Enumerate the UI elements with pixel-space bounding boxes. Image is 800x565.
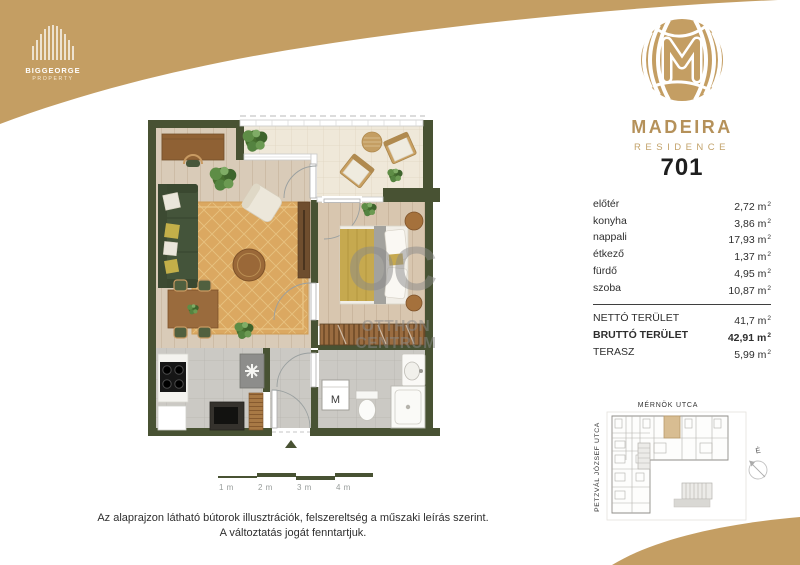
area-row: szoba 10,87 m2 <box>593 282 771 299</box>
disclaimer-line1: Az alaprajzon látható bútorok illusztrác… <box>35 511 551 526</box>
entrance-marker-icon <box>285 440 297 448</box>
area-row: előtér 2,72 m2 <box>593 198 771 215</box>
scale-label: 2 m <box>258 483 273 492</box>
hall-bench <box>249 393 263 430</box>
table-divider <box>593 304 771 305</box>
disclaimer: Az alaprajzon látható bútorok illusztrác… <box>35 511 551 540</box>
project-logo: MADEIRA RESIDENCE <box>593 16 771 153</box>
developer-logo: BIGGEORGE PROPERTY <box>18 22 88 82</box>
scale-bar: 1 m 2 m 3 m 4 m <box>218 470 376 496</box>
area-table: előtér 2,72 m2 konyha 3,86 m2 nappali 17… <box>593 198 771 362</box>
area-row: fürdő 4,95 m2 <box>593 265 771 282</box>
washing-machine-label: M <box>331 394 340 406</box>
desk <box>162 134 224 160</box>
highlighted-unit <box>664 416 680 438</box>
total-row-terasz: TERASZ 5,99 m2 <box>593 346 771 363</box>
compass-label: É <box>755 446 762 456</box>
washing-machine: M <box>322 380 349 410</box>
unit-number: 701 <box>593 154 771 182</box>
project-name: MADEIRA <box>593 117 771 138</box>
area-row: étkező 1,37 m2 <box>593 248 771 265</box>
project-subtitle: RESIDENCE <box>593 142 771 153</box>
scale-label: 3 m <box>297 483 312 492</box>
watermark: OC OTTHON CENTRUM <box>348 235 437 352</box>
pillow-yellow <box>164 223 180 239</box>
developer-subtitle: PROPERTY <box>18 76 88 82</box>
site-plan: MÉRNÖK UTCA PETZVÁL JÓZSEF UTCA <box>588 393 800 525</box>
hall-door <box>311 283 316 320</box>
sink <box>402 354 425 386</box>
scale-label: 1 m <box>219 483 234 492</box>
bedside-stool <box>405 212 423 230</box>
area-row: nappali 17,93 m2 <box>593 231 771 248</box>
street-label-left: PETZVÁL JÓZSEF UTCA <box>592 422 601 512</box>
entry-gap <box>272 428 310 436</box>
kitchen-cabinet <box>158 406 186 430</box>
asterisk-icon <box>245 364 259 378</box>
disclaimer-line2: A változtatás jogát fenntartjuk. <box>35 526 551 541</box>
biggeorge-logo-icon <box>31 22 75 64</box>
total-row-brutto: BRUTTÓ TERÜLET 42,91 m2 <box>593 329 771 346</box>
total-row-netto: NETTÓ TERÜLET 41,7 m2 <box>593 312 771 329</box>
scale-label: 4 m <box>336 483 351 492</box>
street-label-top: MÉRNÖK UTCA <box>638 400 699 409</box>
shower <box>391 386 425 428</box>
watermark-line1: OTTHON <box>362 318 430 335</box>
sofa <box>158 184 198 288</box>
floor-plan: M OC OTTHON CENTRUM <box>148 114 440 450</box>
terrace-railing <box>240 120 423 126</box>
watermark-initials: OC <box>348 235 437 304</box>
entry-door <box>272 390 277 428</box>
bathroom-door <box>311 353 316 387</box>
watermark-line2: CENTRUM <box>356 335 437 352</box>
area-row: konyha 3,86 m2 <box>593 215 771 232</box>
bedroom-door <box>324 199 360 203</box>
pillow-white <box>163 192 181 210</box>
compass: É <box>749 446 767 479</box>
terrace-door <box>310 164 316 198</box>
madeira-logo-icon <box>638 16 726 104</box>
developer-name: BIGGEORGE <box>18 66 88 75</box>
brochure-page: BIGGEORGE PROPERTY MADEIRA RESIDENCE 701 <box>0 0 800 565</box>
